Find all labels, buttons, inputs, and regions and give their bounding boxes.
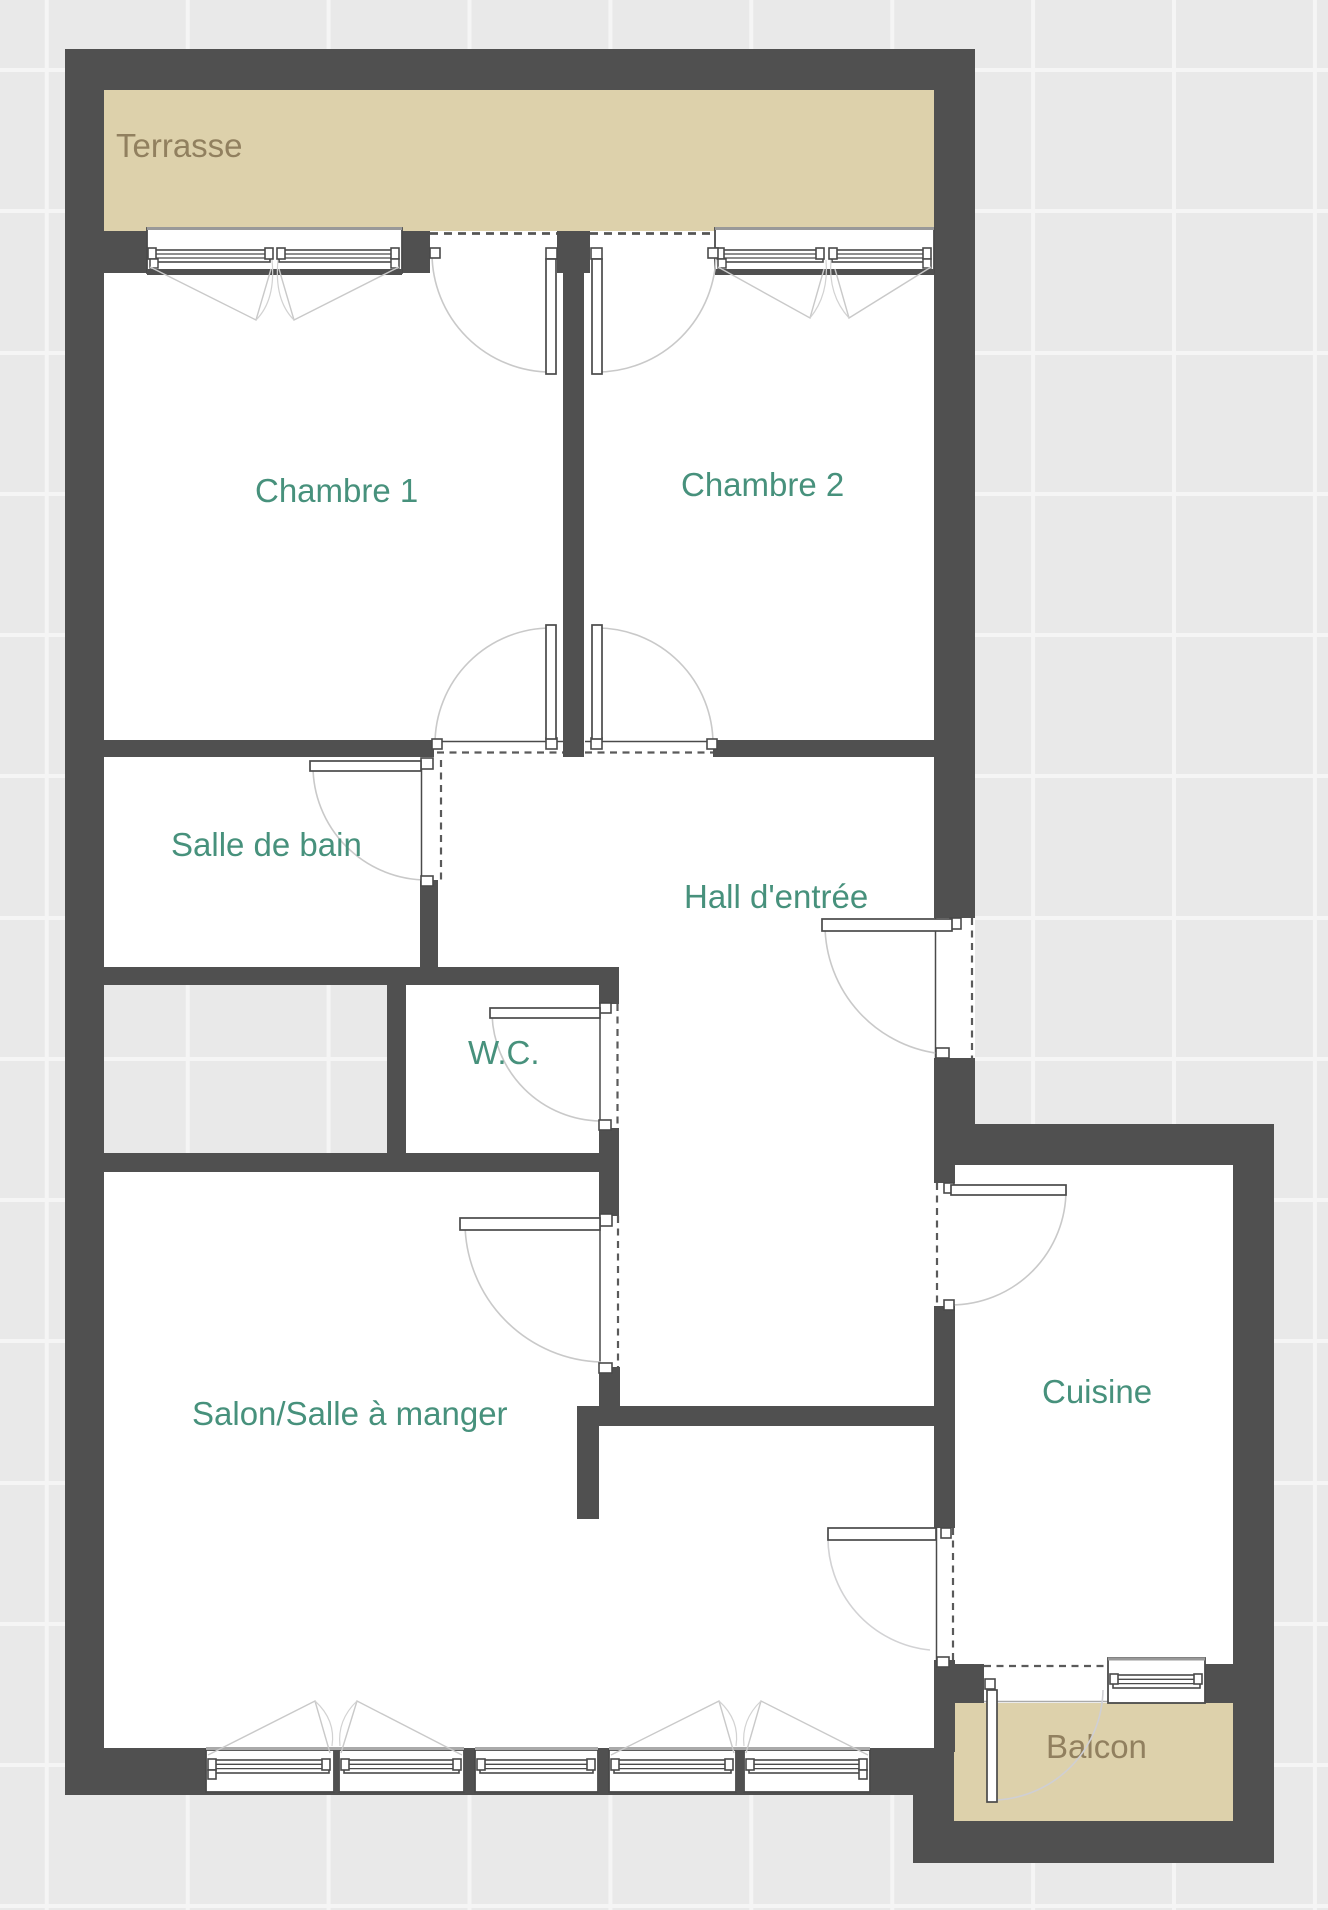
svg-text:Terrasse: Terrasse — [116, 127, 243, 164]
svg-text:Balcon: Balcon — [1046, 1728, 1147, 1765]
svg-text:Salon/Salle à manger: Salon/Salle à manger — [192, 1395, 508, 1432]
svg-text:Chambre 1: Chambre 1 — [255, 472, 418, 509]
svg-text:Salle de bain: Salle de bain — [171, 826, 362, 863]
svg-text:Chambre 2: Chambre 2 — [681, 466, 844, 503]
svg-text:Cuisine: Cuisine — [1042, 1373, 1152, 1410]
svg-text:W.C.: W.C. — [468, 1034, 540, 1071]
svg-text:Hall d'entrée: Hall d'entrée — [684, 878, 868, 915]
